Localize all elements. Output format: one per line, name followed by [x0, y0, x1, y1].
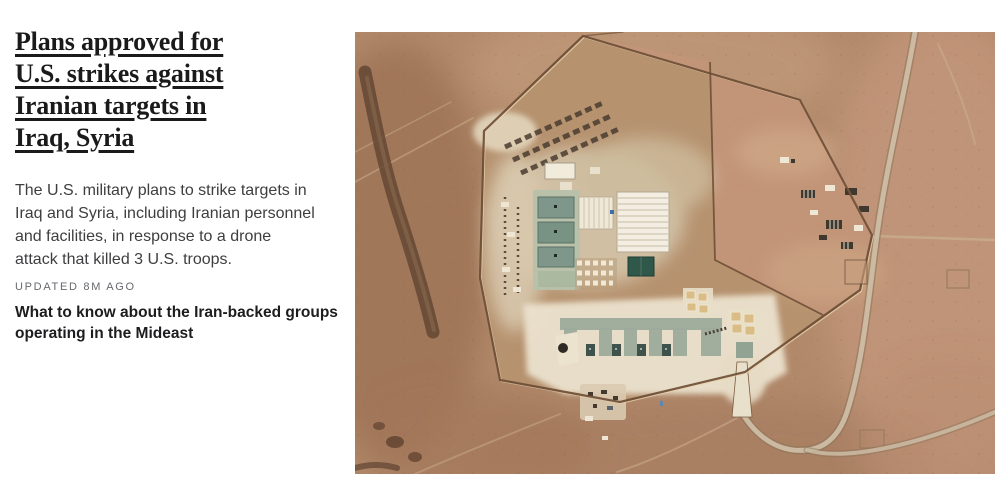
headline-line: Iraq, Syria	[15, 122, 345, 154]
summary-line: Iraq and Syria, including Iranian person…	[15, 202, 333, 225]
related-line: operating in the Mideast	[15, 323, 345, 344]
satellite-image[interactable]	[355, 32, 995, 474]
related-story-link[interactable]: What to know about the Iran-backed group…	[15, 302, 345, 344]
article-headline-link[interactable]: Plans approved for U.S. strikes against …	[15, 26, 345, 154]
article-summary: The U.S. military plans to strike target…	[15, 179, 333, 271]
summary-line: The U.S. military plans to strike target…	[15, 179, 333, 202]
updated-timestamp: UPDATED 8M AGO	[15, 281, 345, 293]
headline-line: Iranian targets in	[15, 90, 345, 122]
related-line: What to know about the Iran-backed group…	[15, 302, 345, 323]
page: Plans approved for U.S. strikes against …	[0, 0, 1008, 481]
article-teaser: Plans approved for U.S. strikes against …	[15, 26, 345, 344]
summary-line: attack that killed 3 U.S. troops.	[15, 248, 333, 271]
headline-line: Plans approved for	[15, 26, 345, 58]
headline-line: U.S. strikes against	[15, 58, 345, 90]
summary-line: and facilities, in response to a drone	[15, 225, 333, 248]
